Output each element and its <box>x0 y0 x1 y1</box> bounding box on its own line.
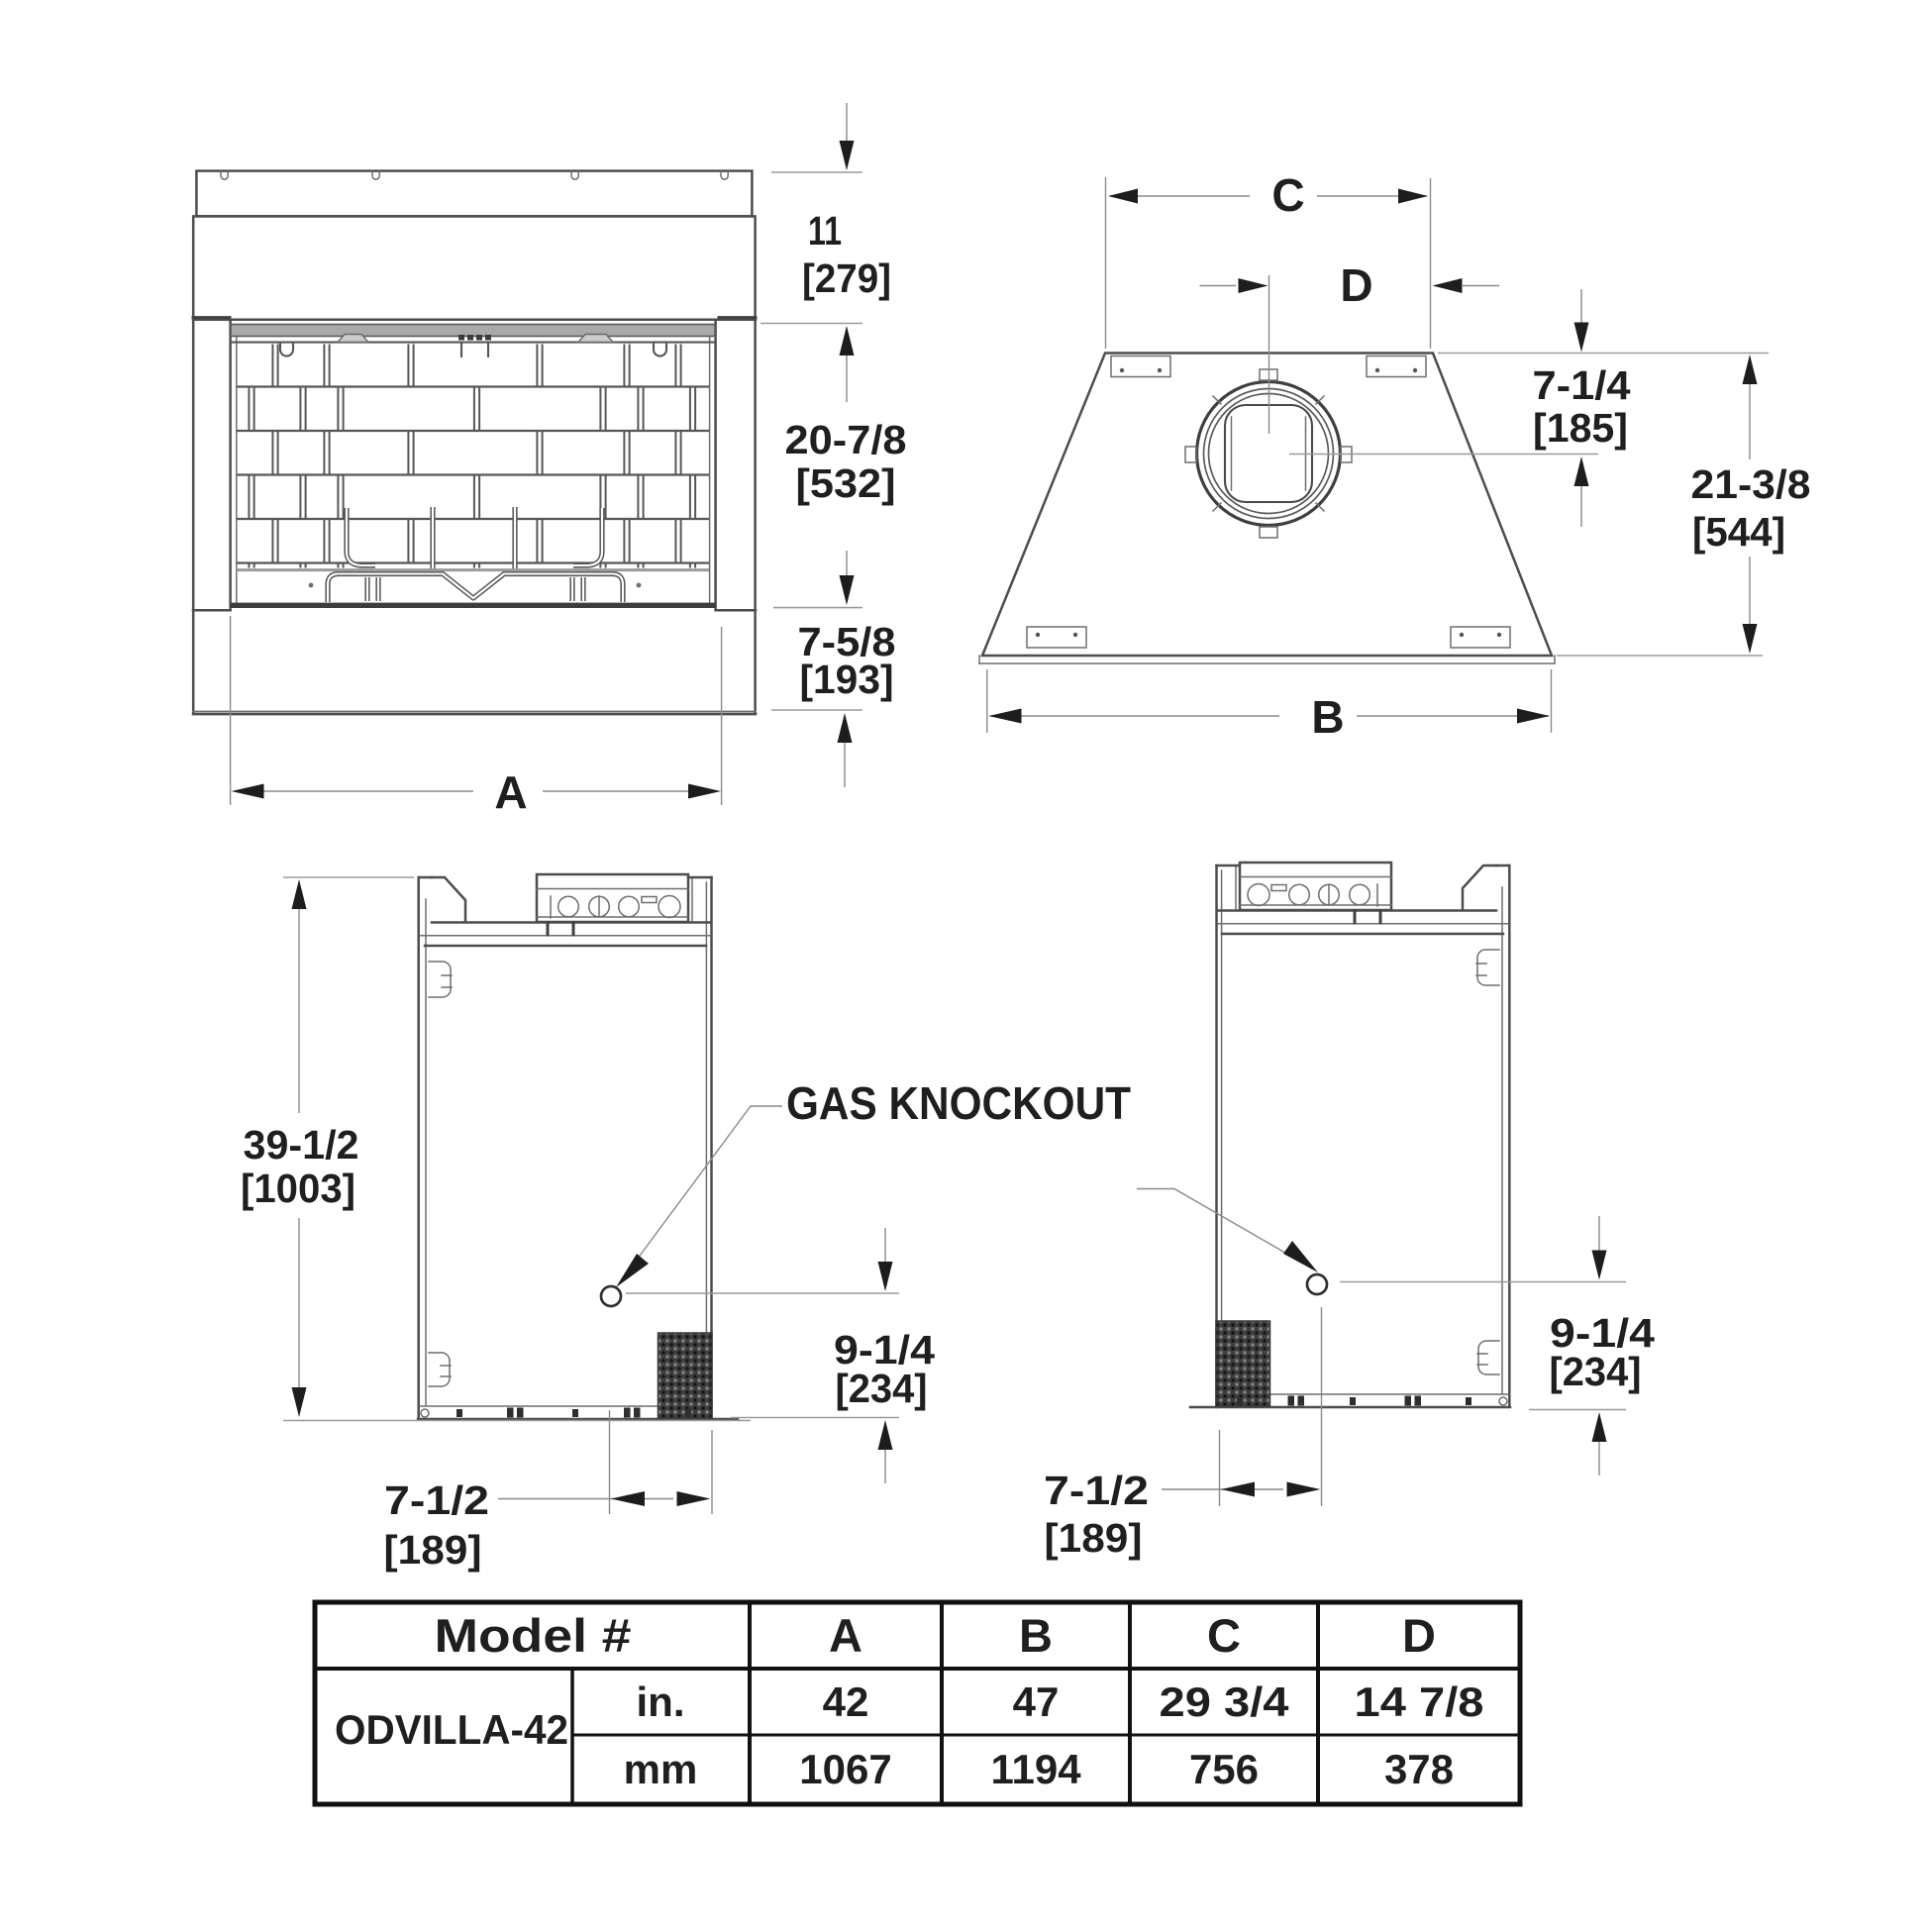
svg-text:14 7/8: 14 7/8 <box>1355 1678 1484 1725</box>
svg-text:A: A <box>829 1609 862 1662</box>
svg-text:ODVILLA-42: ODVILLA-42 <box>335 1706 568 1753</box>
svg-text:378: 378 <box>1384 1746 1454 1792</box>
svg-text:7-1/2: 7-1/2 <box>1044 1468 1149 1513</box>
svg-text:1067: 1067 <box>799 1746 891 1792</box>
svg-text:756: 756 <box>1189 1746 1259 1792</box>
svg-text:[189]: [189] <box>1045 1515 1143 1561</box>
svg-text:C: C <box>1271 169 1304 221</box>
svg-text:in.: in. <box>637 1678 685 1725</box>
svg-text:[189]: [189] <box>384 1527 482 1573</box>
svg-text:7-1/2: 7-1/2 <box>384 1477 489 1523</box>
svg-text:B: B <box>1311 691 1344 743</box>
svg-text:[234]: [234] <box>1550 1349 1642 1394</box>
svg-text:20-7/8: 20-7/8 <box>785 417 907 462</box>
svg-text:[544]: [544] <box>1692 509 1785 555</box>
svg-text:1194: 1194 <box>990 1746 1081 1792</box>
svg-text:42: 42 <box>823 1678 869 1725</box>
svg-text:11: 11 <box>808 208 842 254</box>
svg-text:Model #: Model # <box>435 1609 632 1662</box>
svg-text:D: D <box>1340 259 1372 311</box>
svg-text:[279]: [279] <box>802 255 891 301</box>
svg-text:[185]: [185] <box>1533 405 1628 451</box>
svg-text:mm: mm <box>624 1746 698 1792</box>
svg-text:[234]: [234] <box>836 1366 928 1411</box>
svg-text:[532]: [532] <box>796 460 896 506</box>
svg-text:29 3/4: 29 3/4 <box>1160 1678 1290 1725</box>
svg-text:39-1/2: 39-1/2 <box>244 1122 359 1168</box>
svg-text:A: A <box>494 766 527 818</box>
svg-text:D: D <box>1402 1609 1436 1662</box>
svg-text:GAS KNOCKOUT: GAS KNOCKOUT <box>786 1077 1131 1129</box>
svg-text:7-1/4: 7-1/4 <box>1533 362 1631 408</box>
svg-text:21-3/8: 21-3/8 <box>1691 461 1811 507</box>
svg-text:B: B <box>1019 1609 1053 1662</box>
svg-text:47: 47 <box>1013 1678 1060 1725</box>
svg-text:[1003]: [1003] <box>241 1166 355 1211</box>
svg-text:C: C <box>1207 1609 1241 1662</box>
svg-text:[193]: [193] <box>800 657 894 702</box>
